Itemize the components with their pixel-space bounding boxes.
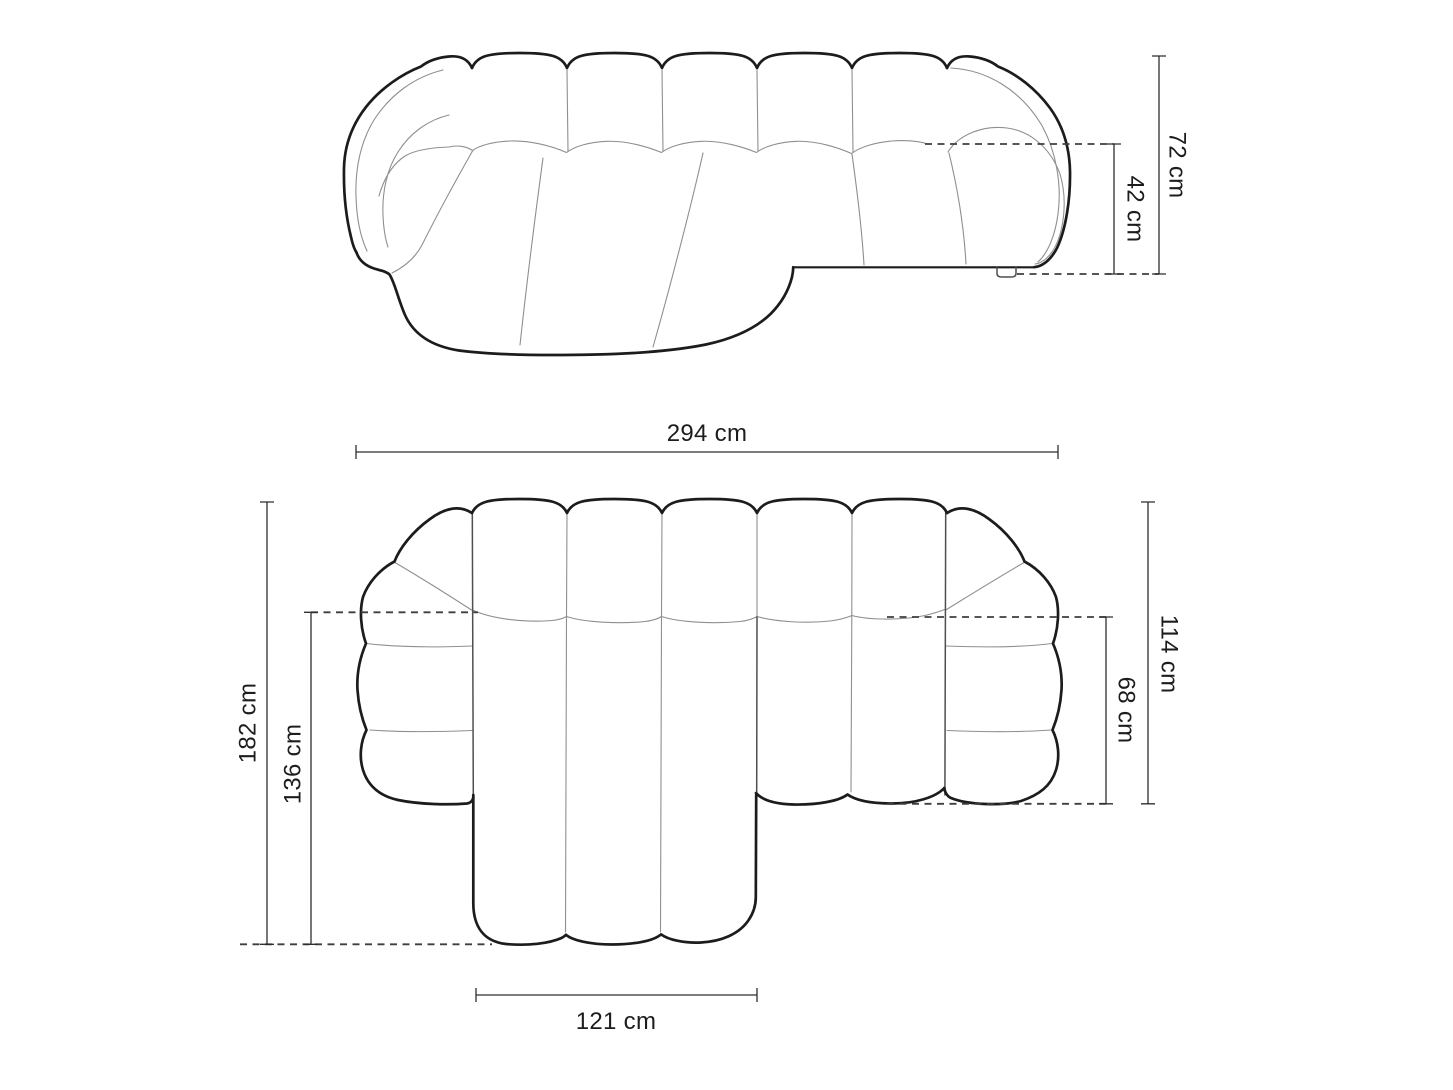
plan-seat-seam bbox=[851, 616, 852, 792]
front-chaise-outline bbox=[357, 253, 794, 356]
chaise-width-dim-line bbox=[476, 988, 757, 1002]
total-width-label: 294 cm bbox=[667, 420, 748, 447]
front-chaise-seam-mid bbox=[520, 158, 543, 345]
plan-back-cushions-outline bbox=[472, 499, 947, 513]
diagram-svg: 42 cm 72 cm bbox=[0, 0, 1453, 1090]
front-dimensions: 42 cm 72 cm bbox=[1107, 56, 1191, 274]
seat-depth-label: 68 cm bbox=[1113, 677, 1140, 744]
seat-height-label: 42 cm bbox=[1122, 176, 1149, 243]
sofa-dimension-diagram: 42 cm 72 cm bbox=[0, 0, 1453, 1090]
plan-view: 294 cm 121 cm 182 cm 136 cm 114 cm 68 cm bbox=[234, 420, 1182, 1035]
total-width-dim-line bbox=[356, 445, 1058, 459]
seat-height-dim-line bbox=[1107, 144, 1121, 274]
plan-back-cushion-seam-2 bbox=[662, 513, 663, 616]
front-seat-seam-2 bbox=[949, 153, 966, 264]
plan-chaise-seam-1 bbox=[566, 617, 567, 932]
plan-right-arm-boundary bbox=[945, 512, 946, 795]
plan-chaise-seam-2 bbox=[661, 617, 662, 932]
plan-chaise-left-boundary bbox=[472, 512, 473, 795]
chaise-width-label: 121 cm bbox=[576, 1008, 657, 1035]
front-left-arm-roll-2 bbox=[383, 115, 449, 247]
front-back-cushion-seam-1 bbox=[567, 70, 568, 151]
front-back-cushion-seam-2 bbox=[662, 70, 663, 151]
plan-backrest-front-seam bbox=[474, 610, 945, 623]
plan-left-arm-seam-1 bbox=[367, 644, 473, 647]
plan-right-arm-diagonal-seam bbox=[946, 563, 1024, 611]
front-back-seat-seam bbox=[379, 141, 928, 196]
plan-right-arm-outline bbox=[944, 508, 1061, 804]
body-depth-dim-line bbox=[1141, 502, 1155, 804]
plan-right-arm-seam-1 bbox=[946, 644, 1053, 647]
plan-front-edge-outline bbox=[756, 788, 944, 805]
front-right-arm-dome bbox=[948, 127, 1064, 264]
plan-chaise-outline bbox=[473, 795, 756, 945]
front-chaise-seam-right bbox=[653, 153, 703, 347]
total-depth-dim-line bbox=[260, 502, 274, 944]
front-view: 42 cm 72 cm bbox=[344, 53, 1191, 355]
plan-right-arm-seam-2 bbox=[947, 730, 1051, 732]
front-back-cushions-outline bbox=[472, 53, 947, 68]
front-foot bbox=[997, 268, 1016, 278]
total-height-label: 72 cm bbox=[1164, 132, 1191, 199]
plan-left-arm-outline bbox=[357, 508, 473, 804]
body-depth-label: 114 cm bbox=[1156, 615, 1183, 694]
front-back-cushion-seam-4 bbox=[852, 70, 853, 152]
plan-back-cushion-seam-1 bbox=[567, 513, 568, 616]
plan-left-arm-seam-2 bbox=[370, 730, 472, 732]
chaise-depth-label: 136 cm bbox=[279, 724, 306, 805]
front-seat-seam-1 bbox=[852, 154, 864, 265]
front-right-arm-roll bbox=[951, 68, 1059, 262]
total-depth-label: 182 cm bbox=[234, 683, 261, 764]
seat-depth-dim-line bbox=[1099, 617, 1113, 804]
plan-left-arm-diagonal-seam bbox=[395, 563, 472, 611]
front-back-cushion-seam-3 bbox=[757, 70, 758, 151]
front-chaise-seam-left bbox=[392, 151, 473, 273]
